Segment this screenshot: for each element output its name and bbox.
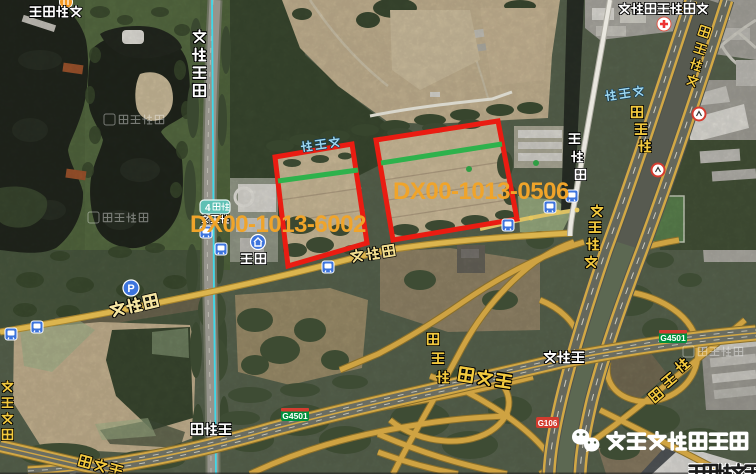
svg-text:DX00-1013-0506: DX00-1013-0506 <box>393 178 569 205</box>
svg-text:G4501: G4501 <box>660 333 686 343</box>
svg-text:G106: G106 <box>538 419 558 428</box>
svg-text:G4501: G4501 <box>282 411 308 421</box>
svg-text:P: P <box>127 283 134 295</box>
svg-text:DX00-1013-6002: DX00-1013-6002 <box>190 211 366 238</box>
